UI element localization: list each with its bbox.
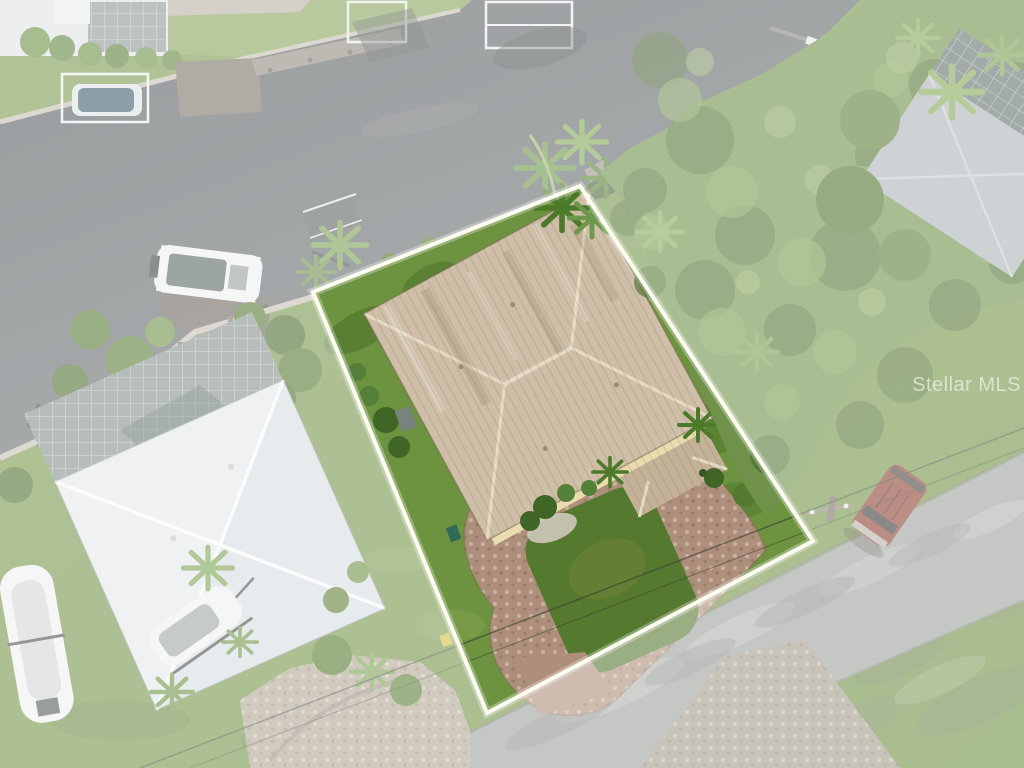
- aerial-property-photo: Stellar MLS: [0, 0, 1024, 768]
- yard-drain: [699, 469, 707, 477]
- stellar-mls-watermark: Stellar MLS: [912, 374, 1021, 396]
- aerial-scene: Stellar MLS: [0, 0, 1024, 768]
